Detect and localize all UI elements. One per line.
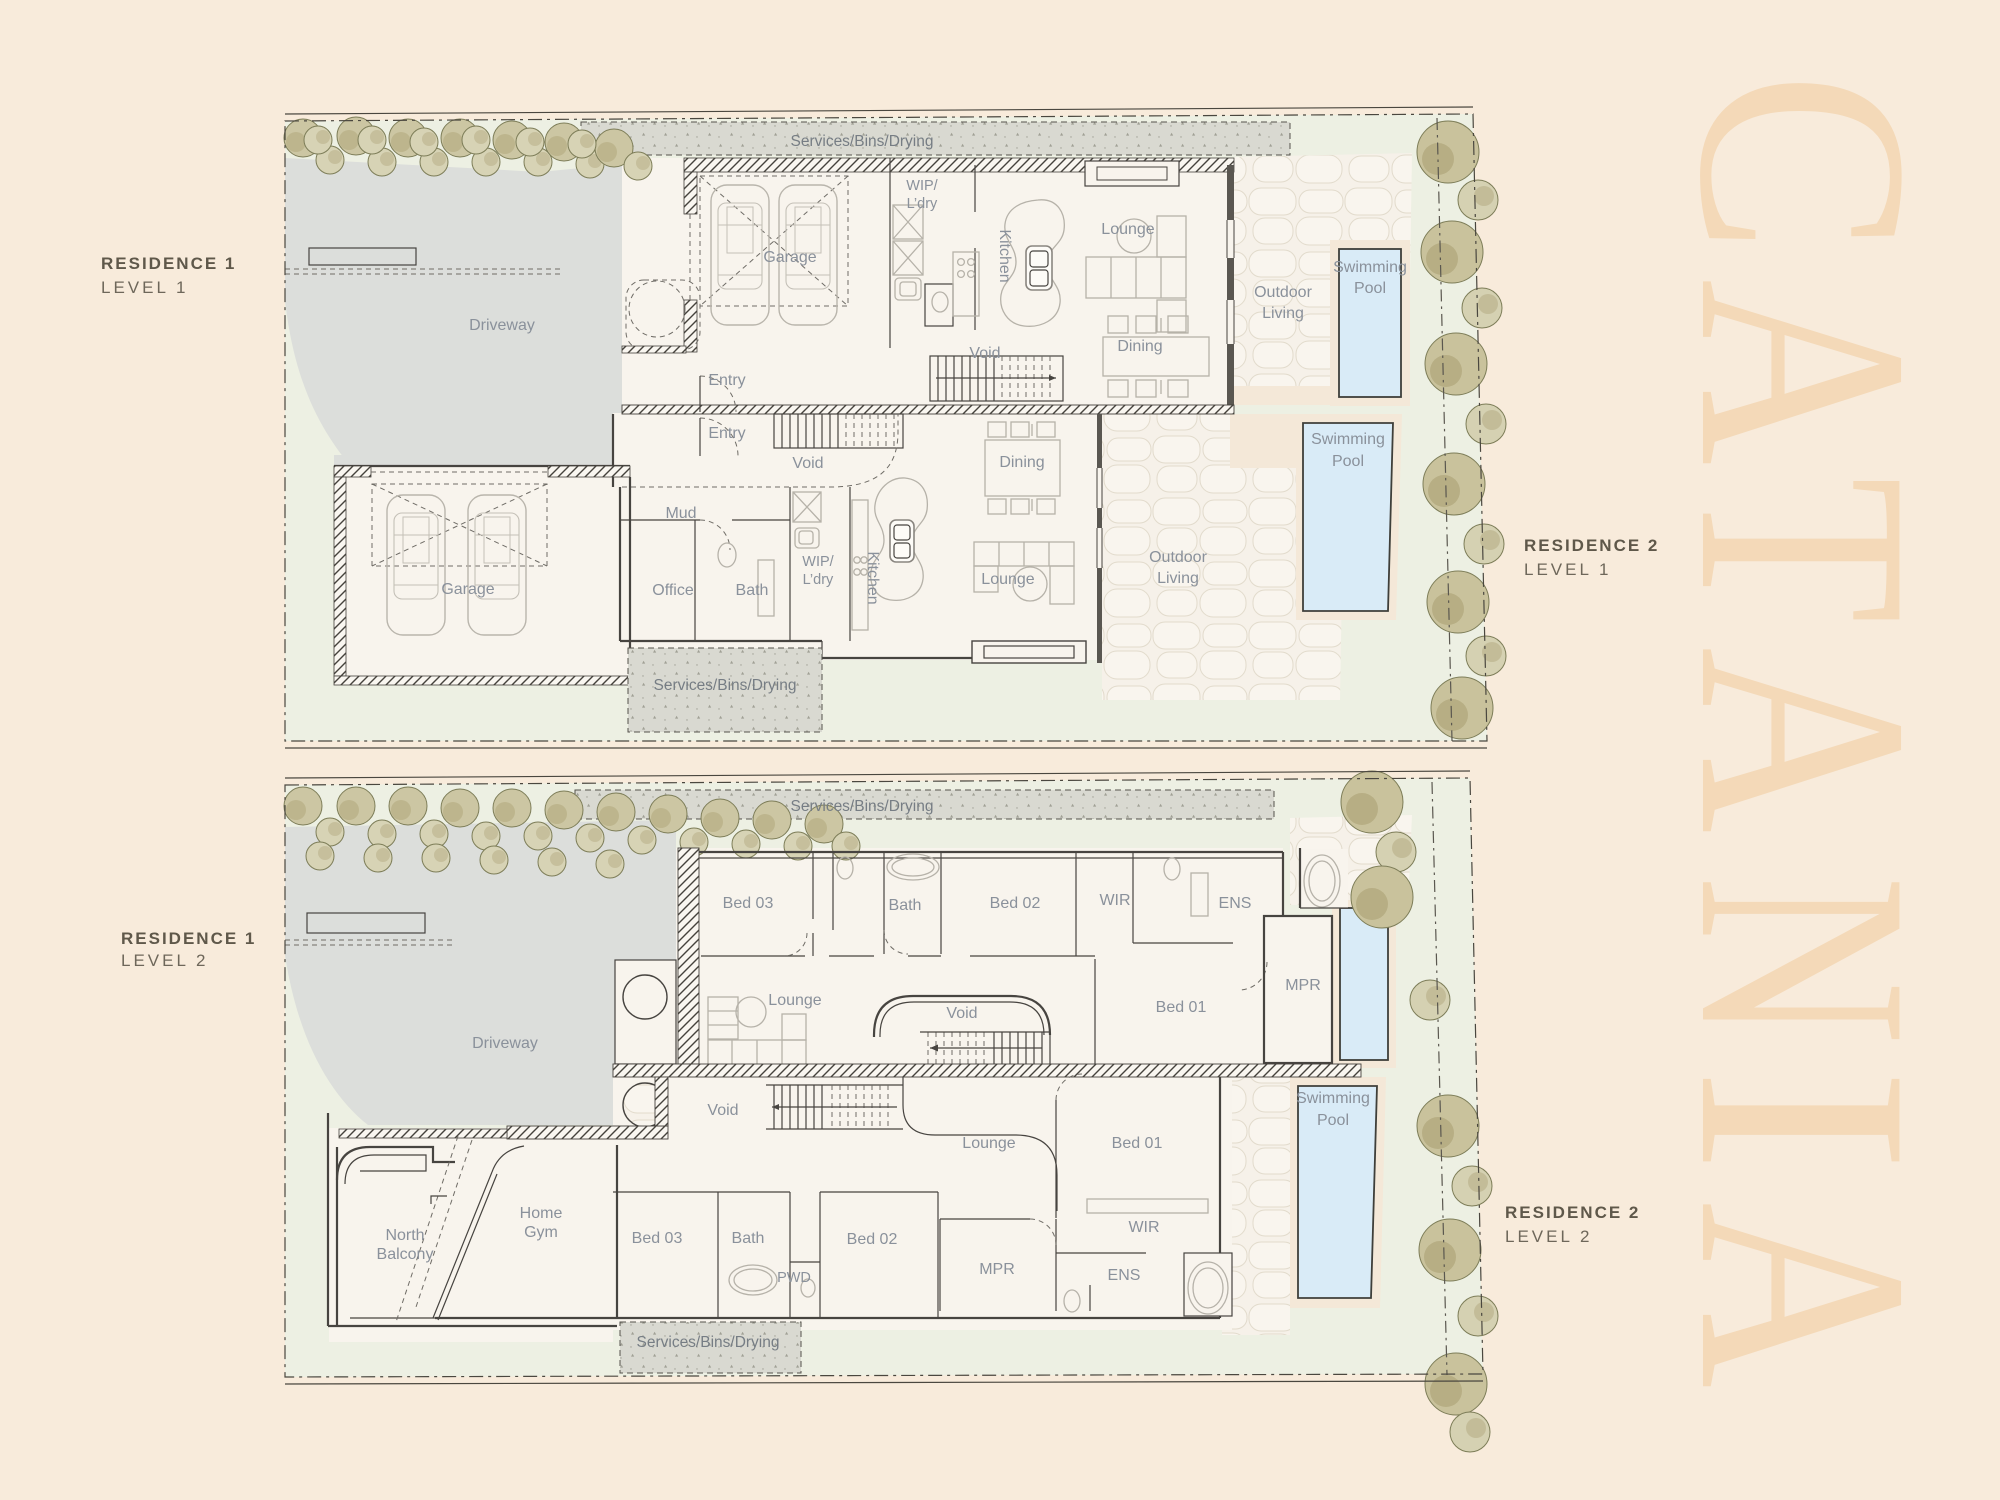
svg-text:MPR: MPR [979,1261,1015,1278]
svg-text:Bed 03: Bed 03 [723,895,774,912]
svg-text:Home: Home [520,1205,563,1222]
svg-text:RESIDENCE 2: RESIDENCE 2 [1524,536,1659,555]
svg-text:Garage: Garage [763,249,816,266]
svg-text:WIR: WIR [1099,892,1130,909]
svg-text:RESIDENCE 1: RESIDENCE 1 [101,254,236,273]
svg-text:LEVEL 1: LEVEL 1 [101,278,188,297]
svg-text:Driveway: Driveway [469,317,535,334]
svg-text:LEVEL 1: LEVEL 1 [1524,560,1611,579]
svg-text:Pool: Pool [1332,453,1364,470]
svg-text:I: I [1638,1068,1971,1173]
svg-text:Lounge: Lounge [1101,221,1154,238]
svg-text:WIP/: WIP/ [906,178,938,194]
svg-text:Entry: Entry [708,425,745,442]
svg-text:Outdoor: Outdoor [1149,549,1207,566]
svg-text:Swimming: Swimming [1311,431,1385,448]
svg-text:Driveway: Driveway [472,1035,538,1052]
svg-text:Mud: Mud [665,505,696,522]
svg-text:Dining: Dining [1117,338,1162,355]
svg-text:C: C [1637,72,1970,254]
svg-text:LEVEL 2: LEVEL 2 [121,951,208,970]
svg-text:Lounge: Lounge [768,992,821,1009]
svg-text:WIR: WIR [1128,1219,1159,1236]
svg-text:Swimming: Swimming [1296,1090,1370,1107]
svg-text:L’dry: L’dry [803,572,834,588]
svg-text:MPR: MPR [1285,977,1321,994]
svg-text:Garage: Garage [441,581,494,598]
svg-text:Bed 02: Bed 02 [990,895,1041,912]
svg-text:PWD: PWD [777,1270,811,1286]
svg-text:Bath: Bath [736,582,769,599]
svg-text:Dining: Dining [999,454,1044,471]
svg-text:Balcony: Balcony [377,1246,434,1263]
svg-text:Bed 02: Bed 02 [847,1231,898,1248]
svg-text:Bed 03: Bed 03 [632,1230,683,1247]
svg-text:Pool: Pool [1317,1112,1349,1129]
svg-text:ENS: ENS [1108,1267,1141,1284]
svg-text:Bath: Bath [889,897,922,914]
svg-text:Gym: Gym [524,1224,558,1241]
svg-text:Outdoor: Outdoor [1254,284,1312,301]
svg-text:N: N [1637,876,1969,1045]
svg-text:LEVEL 2: LEVEL 2 [1505,1227,1592,1246]
svg-text:Pool: Pool [1354,280,1386,297]
svg-text:Services/Bins/Drying: Services/Bins/Drying [637,1334,780,1351]
svg-text:Void: Void [969,345,1000,362]
svg-text:Services/Bins/Drying: Services/Bins/Drying [791,798,934,815]
svg-text:Void: Void [946,1005,977,1022]
svg-text:Lounge: Lounge [962,1135,1015,1152]
svg-text:Lounge: Lounge [981,571,1034,588]
svg-text:Living: Living [1262,305,1304,322]
svg-text:Entry: Entry [708,372,745,389]
svg-text:Kitchen: Kitchen [864,551,881,604]
svg-text:North: North [385,1227,424,1244]
svg-text:T: T [1638,477,1970,624]
svg-text:L’dry: L’dry [907,196,938,212]
svg-text:RESIDENCE 2: RESIDENCE 2 [1505,1203,1640,1222]
svg-text:WIP/: WIP/ [802,554,834,570]
svg-text:Living: Living [1157,570,1199,587]
svg-text:Bed 01: Bed 01 [1156,999,1207,1016]
svg-text:ENS: ENS [1219,895,1252,912]
svg-text:Services/Bins/Drying: Services/Bins/Drying [654,677,797,694]
svg-text:A: A [1638,1202,1970,1388]
svg-text:Kitchen: Kitchen [996,229,1013,282]
svg-text:Void: Void [792,455,823,472]
svg-text:Void: Void [707,1102,738,1119]
svg-text:Bath: Bath [732,1230,765,1247]
svg-text:Bed 01: Bed 01 [1112,1135,1163,1152]
svg-text:Swimming: Swimming [1333,259,1407,276]
svg-text:A: A [1638,647,1970,833]
svg-text:Services/Bins/Drying: Services/Bins/Drying [791,133,934,150]
svg-text:A: A [1638,279,1970,465]
svg-text:RESIDENCE 1: RESIDENCE 1 [121,929,256,948]
svg-text:Office: Office [652,582,694,599]
